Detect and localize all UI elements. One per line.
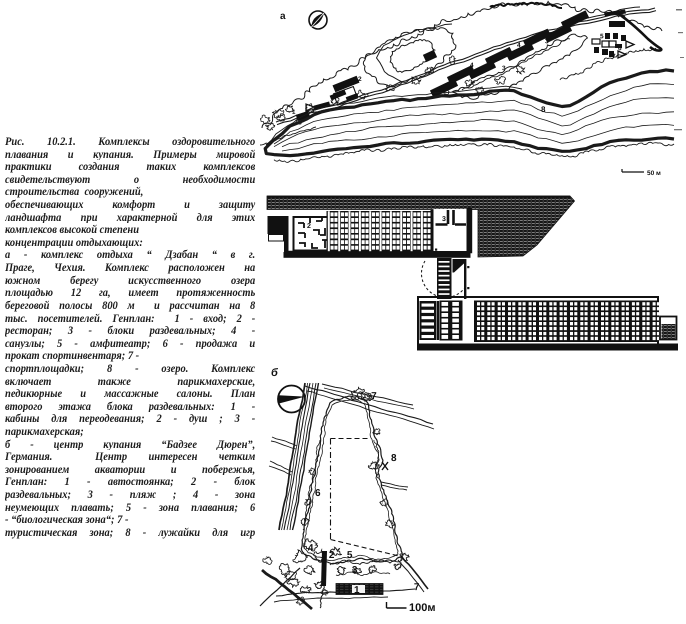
svg-text:4: 4 [517,42,521,49]
svg-text:3: 3 [442,216,446,223]
svg-text:5: 5 [347,550,353,561]
svg-text:7: 7 [612,53,616,60]
svg-text:2: 2 [329,550,335,561]
svg-text:8: 8 [541,105,546,114]
svg-text:7: 7 [414,582,420,593]
svg-text:50 м: 50 м [647,170,661,177]
svg-text:2: 2 [307,223,311,230]
svg-text:3: 3 [352,565,358,576]
svg-text:7: 7 [371,391,377,402]
svg-text:1: 1 [354,585,360,596]
svg-text:4: 4 [470,62,474,69]
svg-text:4: 4 [308,543,314,554]
svg-text:б: б [271,367,279,379]
svg-text:6: 6 [618,45,622,52]
svg-text:5: 5 [600,33,604,40]
svg-text:8: 8 [391,453,397,464]
svg-text:100м: 100м [409,602,436,614]
svg-text:3: 3 [502,65,506,72]
svg-text:a: a [280,11,286,22]
svg-text:2: 2 [358,76,362,83]
svg-text:6: 6 [315,488,321,499]
svg-text:3: 3 [545,38,549,45]
